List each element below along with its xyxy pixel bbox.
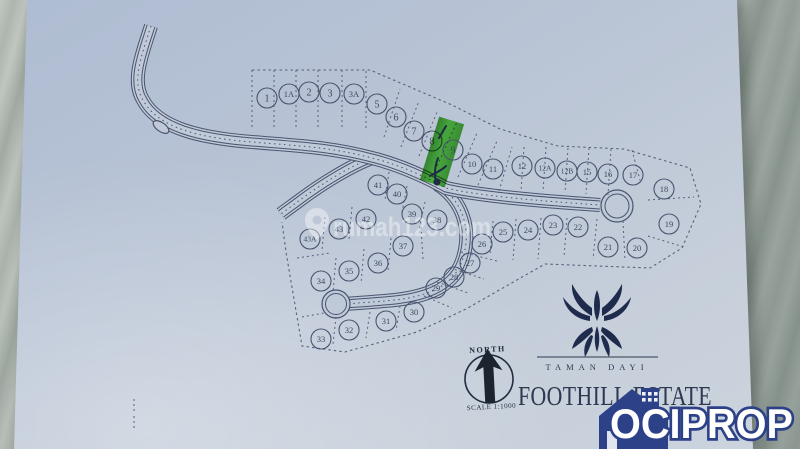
developer-logo-ornament	[563, 284, 631, 357]
svg-text:35: 35	[345, 266, 354, 276]
svg-text:2: 2	[307, 88, 312, 99]
svg-text:6: 6	[394, 113, 399, 124]
svg-text:25: 25	[499, 227, 508, 237]
lot-marker-7: 7	[404, 121, 424, 141]
lot-marker-9: 9	[420, 117, 464, 188]
lot-marker-33: 33	[311, 329, 331, 349]
cul-de-sac-east	[601, 190, 633, 222]
svg-text:5: 5	[375, 100, 380, 111]
svg-text:22: 22	[574, 222, 583, 232]
svg-text:27: 27	[466, 258, 475, 268]
lot-marker-16: 16	[598, 164, 618, 184]
svg-text:7: 7	[412, 127, 417, 138]
svg-text:19: 19	[665, 219, 674, 229]
lot-marker-17: 17	[623, 165, 643, 185]
lot-marker-31: 31	[376, 311, 396, 331]
svg-text:12B: 12B	[561, 167, 574, 176]
svg-text:41: 41	[374, 180, 383, 190]
svg-text:3: 3	[328, 89, 333, 100]
scale-label: SCALE 1:1000	[467, 402, 517, 413]
lot-marker-25: 25	[493, 222, 513, 242]
lot-marker-41: 41	[368, 175, 388, 195]
lot-marker-11: 11	[483, 159, 503, 179]
north-arrow: NORTH SCALE 1:1000	[463, 344, 516, 413]
lot-marker-23: 23	[543, 215, 563, 235]
lot-marker-5: 5	[367, 94, 387, 114]
lot-marker-21: 21	[598, 237, 618, 257]
lot-marker-22: 22	[568, 217, 588, 237]
road-entrance-stub	[281, 158, 372, 214]
svg-text:1: 1	[265, 94, 270, 105]
lot-marker-32: 32	[339, 320, 359, 340]
svg-text:33: 33	[317, 334, 326, 344]
lot-marker-35: 35	[339, 261, 359, 281]
lot-marker-1: 1	[257, 88, 277, 108]
svg-text:15: 15	[583, 167, 592, 177]
lot-marker-34: 34	[311, 271, 331, 291]
svg-text:28: 28	[450, 272, 459, 282]
lot-marker-3A: 3A	[344, 84, 364, 104]
agency-logo-text: OCIPROP	[610, 400, 793, 447]
road-network	[138, 26, 633, 318]
svg-text:21: 21	[604, 242, 613, 252]
svg-text:12: 12	[518, 161, 527, 171]
svg-text:1A: 1A	[284, 89, 295, 99]
lot-marker-12A: 12A	[535, 158, 555, 178]
svg-text:9: 9	[451, 146, 456, 157]
svg-text:17: 17	[629, 170, 638, 180]
developer-logo-name: TAMAN DAYI	[545, 362, 648, 372]
site-plan-photo: { "image_type": "photographed housing es…	[0, 0, 800, 449]
svg-text:40: 40	[393, 189, 402, 199]
lot-marker-24: 24	[518, 220, 538, 240]
svg-text:30: 30	[410, 307, 419, 317]
lot-marker-20: 20	[627, 238, 647, 258]
svg-text:18: 18	[660, 184, 669, 194]
lot-marker-30: 30	[404, 302, 424, 322]
svg-text:24: 24	[524, 225, 533, 235]
svg-text:32: 32	[345, 325, 354, 335]
lot-marker-2: 2	[299, 82, 319, 102]
lot-marker-18: 18	[654, 179, 674, 199]
lot-marker-19: 19	[659, 214, 679, 234]
highlighted-lot-marker	[420, 117, 464, 188]
svg-text:34: 34	[317, 276, 326, 286]
road-main	[138, 26, 600, 205]
watermark: rumah123.com	[305, 208, 491, 242]
lot-marker-10: 10	[462, 154, 482, 174]
lot-marker-36: 36	[368, 253, 388, 273]
lot-marker-3: 3	[320, 83, 340, 103]
svg-text:23: 23	[549, 220, 558, 230]
svg-text:10: 10	[468, 159, 477, 169]
svg-text:36: 36	[374, 258, 383, 268]
svg-text:31: 31	[382, 316, 391, 326]
lot-marker-40: 40	[387, 184, 407, 204]
lot-marker-1A: 1A	[279, 84, 299, 104]
svg-text:29: 29	[432, 283, 441, 293]
svg-text:11: 11	[489, 164, 497, 174]
cul-de-sac-west	[322, 290, 350, 318]
svg-text:12A: 12A	[539, 164, 553, 173]
watermark-text: rumah123.com	[333, 212, 491, 242]
site-plan-map: 11A233A5678910111212A12B1516171819202122…	[0, 0, 800, 449]
svg-text:37: 37	[399, 241, 408, 251]
lot-marker-6: 6	[386, 107, 406, 127]
svg-text:16: 16	[604, 169, 613, 179]
svg-text:3A: 3A	[349, 89, 360, 99]
svg-text:20: 20	[633, 243, 642, 253]
